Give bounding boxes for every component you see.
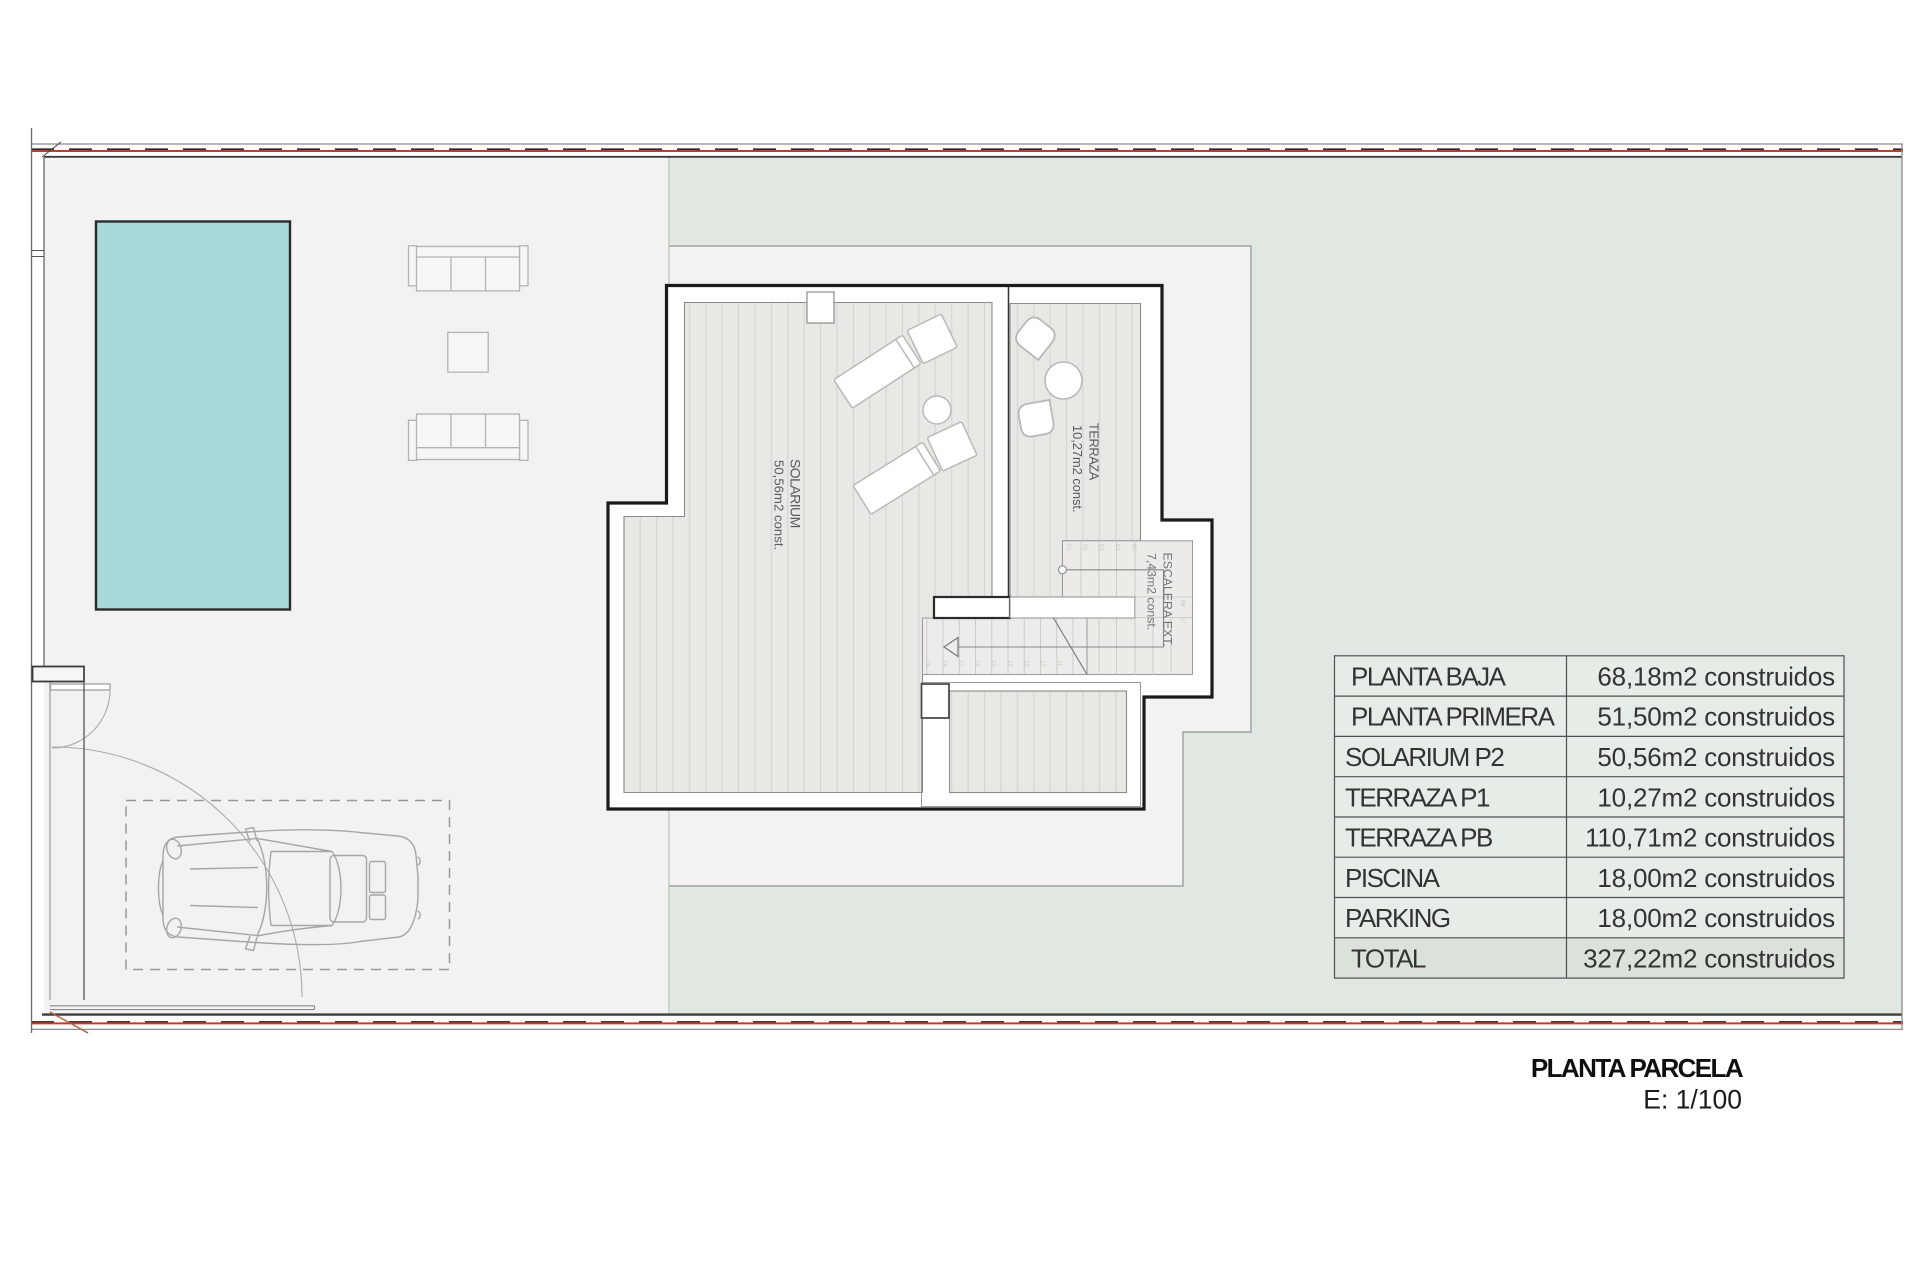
svg-text:05: 05 [1130, 544, 1136, 551]
svg-text:SOLARIUM: SOLARIUM [788, 459, 804, 528]
svg-text:7,43m2 const.: 7,43m2 const. [1145, 553, 1159, 630]
svg-text:03: 03 [1098, 544, 1104, 551]
svg-text:18: 18 [941, 660, 947, 667]
svg-text:ESCALERA EXT.: ESCALERA EXT. [1161, 553, 1175, 647]
svg-text:15: 15 [990, 660, 996, 667]
svg-text:SOLARIUM P2: SOLARIUM P2 [1345, 742, 1504, 772]
svg-text:02: 02 [1081, 544, 1087, 551]
svg-text:PLANTA PARCELA: PLANTA PARCELA [1531, 1053, 1744, 1083]
svg-text:TOTAL: TOTAL [1351, 943, 1426, 973]
svg-text:18,00m2 construidos: 18,00m2 construidos [1597, 903, 1835, 933]
svg-text:11: 11 [1056, 660, 1062, 667]
svg-text:68,18m2 construidos: 68,18m2 construidos [1597, 661, 1835, 691]
svg-text:19: 19 [924, 660, 930, 667]
svg-text:10,27m2 const.: 10,27m2 const. [1070, 425, 1085, 513]
svg-text:PISCINA: PISCINA [1345, 863, 1441, 893]
svg-text:17: 17 [957, 660, 963, 667]
svg-text:50,56m2 const.: 50,56m2 const. [772, 460, 787, 550]
svg-text:PLANTA PRIMERA: PLANTA PRIMERA [1351, 702, 1556, 732]
svg-text:16: 16 [974, 660, 980, 667]
svg-text:04: 04 [1114, 544, 1120, 551]
svg-text:PLANTA BAJA: PLANTA BAJA [1351, 661, 1507, 691]
svg-text:50,56m2 construidos: 50,56m2 construidos [1597, 742, 1835, 772]
svg-text:PARKING: PARKING [1345, 903, 1450, 933]
svg-text:14: 14 [1007, 660, 1013, 667]
svg-text:TERRAZA: TERRAZA [1087, 423, 1102, 481]
svg-text:TERRAZA PB: TERRAZA PB [1345, 823, 1492, 853]
svg-text:12: 12 [1040, 660, 1046, 667]
svg-text:51,50m2 construidos: 51,50m2 construidos [1597, 702, 1835, 732]
svg-text:110,71m2 construidos: 110,71m2 construidos [1585, 823, 1835, 853]
svg-text:327,22m2 construidos: 327,22m2 construidos [1583, 943, 1835, 973]
svg-text:TERRAZA P1: TERRAZA P1 [1345, 782, 1490, 812]
svg-text:13: 13 [1023, 660, 1029, 667]
svg-text:E: 1/100: E: 1/100 [1643, 1085, 1742, 1115]
svg-text:06: 06 [1179, 600, 1185, 607]
svg-text:18,00m2 construidos: 18,00m2 construidos [1597, 863, 1835, 893]
svg-text:01: 01 [1065, 544, 1071, 551]
svg-text:07: 07 [1179, 617, 1185, 624]
svg-text:10,27m2 construidos: 10,27m2 construidos [1597, 782, 1835, 812]
